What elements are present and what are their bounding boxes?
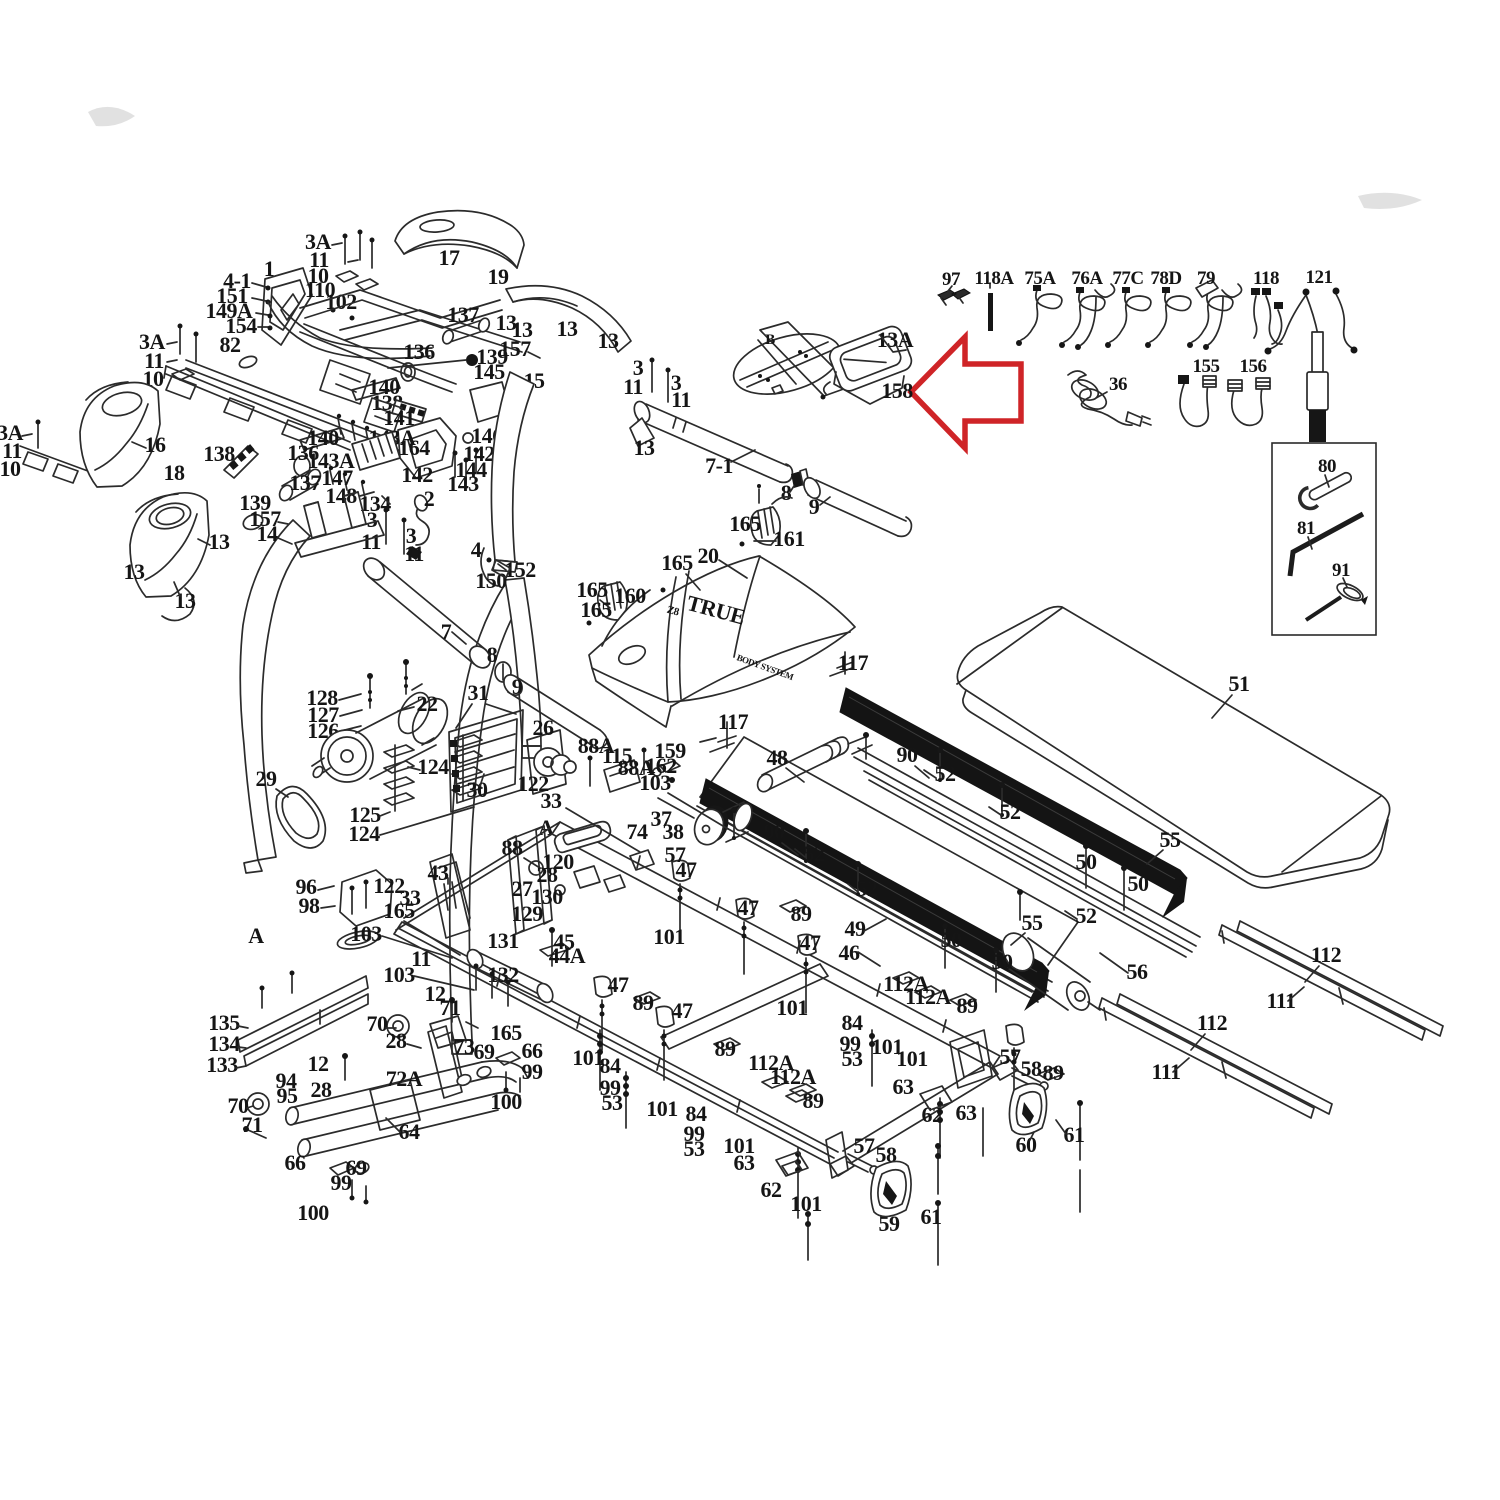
svg-text:4: 4 bbox=[471, 537, 482, 562]
svg-text:14: 14 bbox=[257, 521, 279, 546]
svg-text:101: 101 bbox=[653, 924, 685, 949]
svg-text:13: 13 bbox=[634, 435, 656, 460]
svg-text:38: 38 bbox=[663, 819, 685, 844]
svg-text:75A: 75A bbox=[1024, 268, 1056, 289]
svg-text:13: 13 bbox=[124, 559, 146, 584]
svg-text:9: 9 bbox=[512, 674, 523, 699]
svg-text:63: 63 bbox=[956, 1100, 978, 1125]
svg-text:118A: 118A bbox=[974, 268, 1014, 289]
svg-text:26: 26 bbox=[533, 715, 555, 740]
svg-text:47: 47 bbox=[800, 930, 822, 955]
svg-text:71: 71 bbox=[440, 995, 461, 1020]
svg-text:50: 50 bbox=[992, 949, 1014, 974]
svg-text:133: 133 bbox=[206, 1052, 238, 1077]
svg-text:142: 142 bbox=[401, 462, 433, 487]
svg-text:103: 103 bbox=[383, 962, 415, 987]
svg-text:74: 74 bbox=[627, 819, 649, 844]
svg-text:165: 165 bbox=[383, 898, 415, 923]
svg-text:47: 47 bbox=[672, 998, 694, 1023]
svg-text:B: B bbox=[765, 332, 775, 348]
svg-text:103: 103 bbox=[350, 921, 382, 946]
svg-text:1: 1 bbox=[264, 256, 275, 281]
svg-text:69: 69 bbox=[474, 1039, 496, 1064]
svg-text:53: 53 bbox=[602, 1090, 624, 1115]
svg-text:89: 89 bbox=[791, 901, 813, 926]
svg-text:158: 158 bbox=[881, 378, 913, 403]
svg-text:13: 13 bbox=[209, 529, 231, 554]
svg-text:155: 155 bbox=[1193, 356, 1220, 377]
svg-text:2: 2 bbox=[424, 486, 435, 511]
svg-text:124: 124 bbox=[348, 821, 380, 846]
svg-text:117: 117 bbox=[718, 709, 749, 734]
svg-text:72A: 72A bbox=[386, 1066, 423, 1091]
svg-text:138: 138 bbox=[203, 441, 235, 466]
svg-text:89: 89 bbox=[957, 993, 979, 1018]
svg-text:11: 11 bbox=[404, 541, 424, 566]
svg-text:46: 46 bbox=[839, 940, 861, 965]
svg-text:136: 136 bbox=[403, 339, 435, 364]
svg-text:52: 52 bbox=[1000, 799, 1022, 824]
svg-text:90: 90 bbox=[764, 819, 786, 844]
svg-text:47: 47 bbox=[608, 972, 630, 997]
svg-text:100: 100 bbox=[490, 1089, 522, 1114]
svg-text:33: 33 bbox=[541, 788, 563, 813]
svg-text:76A: 76A bbox=[1071, 268, 1103, 289]
svg-text:47: 47 bbox=[738, 895, 760, 920]
svg-text:63: 63 bbox=[734, 1150, 756, 1175]
svg-text:91: 91 bbox=[1332, 560, 1350, 581]
svg-text:47: 47 bbox=[676, 857, 698, 882]
svg-text:30: 30 bbox=[467, 777, 489, 802]
svg-text:58: 58 bbox=[1021, 1056, 1043, 1081]
svg-text:156: 156 bbox=[1240, 356, 1267, 377]
svg-text:95: 95 bbox=[277, 1083, 299, 1108]
svg-text:100: 100 bbox=[297, 1200, 329, 1225]
svg-text:49: 49 bbox=[845, 916, 867, 941]
svg-text:161: 161 bbox=[773, 526, 805, 551]
svg-text:89: 89 bbox=[1043, 1060, 1065, 1085]
svg-text:117: 117 bbox=[838, 650, 869, 675]
svg-text:16: 16 bbox=[145, 432, 167, 457]
svg-text:61: 61 bbox=[921, 1204, 942, 1229]
svg-text:121: 121 bbox=[1306, 267, 1333, 288]
svg-text:13: 13 bbox=[598, 328, 620, 353]
svg-text:52: 52 bbox=[804, 841, 826, 866]
svg-text:89: 89 bbox=[803, 1088, 825, 1113]
svg-text:10: 10 bbox=[0, 456, 21, 481]
svg-text:11: 11 bbox=[671, 387, 691, 412]
svg-text:82: 82 bbox=[220, 332, 242, 357]
svg-text:7-1: 7-1 bbox=[705, 453, 733, 478]
svg-text:145: 145 bbox=[473, 359, 505, 384]
svg-text:51: 51 bbox=[1229, 671, 1250, 696]
svg-text:143: 143 bbox=[447, 471, 479, 496]
svg-text:98: 98 bbox=[299, 893, 321, 918]
svg-text:56: 56 bbox=[1127, 959, 1149, 984]
svg-text:22: 22 bbox=[417, 691, 439, 716]
svg-text:44A: 44A bbox=[549, 943, 586, 968]
svg-text:9: 9 bbox=[809, 494, 820, 519]
svg-text:111: 111 bbox=[1151, 1059, 1180, 1084]
svg-text:124: 124 bbox=[417, 754, 449, 779]
svg-text:137: 137 bbox=[289, 470, 321, 495]
svg-text:73: 73 bbox=[454, 1034, 476, 1059]
svg-text:101: 101 bbox=[646, 1096, 678, 1121]
svg-text:89: 89 bbox=[715, 1036, 737, 1061]
svg-text:88: 88 bbox=[502, 835, 524, 860]
svg-text:29: 29 bbox=[256, 766, 278, 791]
svg-text:112: 112 bbox=[1311, 942, 1342, 967]
svg-text:57: 57 bbox=[854, 1133, 876, 1158]
svg-text:160: 160 bbox=[614, 583, 646, 608]
svg-text:165: 165 bbox=[580, 597, 612, 622]
svg-text:60: 60 bbox=[1016, 1132, 1038, 1157]
svg-text:50: 50 bbox=[1128, 871, 1150, 896]
svg-text:101: 101 bbox=[776, 995, 808, 1020]
svg-text:131: 131 bbox=[487, 928, 519, 953]
svg-text:148: 148 bbox=[325, 483, 357, 508]
svg-text:7: 7 bbox=[441, 619, 452, 644]
svg-text:165: 165 bbox=[661, 550, 693, 575]
svg-text:97: 97 bbox=[942, 269, 961, 290]
svg-text:99: 99 bbox=[331, 1170, 353, 1195]
svg-text:53: 53 bbox=[842, 1046, 864, 1071]
svg-text:28: 28 bbox=[386, 1028, 408, 1053]
svg-text:A: A bbox=[248, 923, 264, 948]
svg-text:78D: 78D bbox=[1150, 268, 1181, 289]
svg-text:157: 157 bbox=[499, 336, 531, 361]
svg-text:79: 79 bbox=[1197, 268, 1215, 289]
svg-text:50: 50 bbox=[941, 927, 963, 952]
svg-text:137: 137 bbox=[447, 302, 479, 327]
svg-text:27: 27 bbox=[512, 876, 534, 901]
svg-text:55: 55 bbox=[1022, 910, 1044, 935]
svg-text:31: 31 bbox=[468, 680, 489, 705]
svg-text:18: 18 bbox=[164, 460, 186, 485]
svg-text:103: 103 bbox=[639, 770, 671, 795]
svg-text:77C: 77C bbox=[1112, 268, 1143, 289]
svg-text:28: 28 bbox=[311, 1077, 333, 1102]
svg-text:150: 150 bbox=[475, 568, 507, 593]
svg-text:12: 12 bbox=[308, 1051, 330, 1076]
svg-text:62: 62 bbox=[761, 1177, 783, 1202]
svg-text:63: 63 bbox=[893, 1074, 915, 1099]
svg-text:11: 11 bbox=[361, 529, 381, 554]
svg-text:64: 64 bbox=[399, 1119, 421, 1144]
svg-text:89: 89 bbox=[633, 990, 655, 1015]
svg-text:8: 8 bbox=[487, 642, 498, 667]
svg-text:52: 52 bbox=[1076, 903, 1098, 928]
svg-text:112A: 112A bbox=[905, 984, 951, 1009]
svg-text:165: 165 bbox=[490, 1020, 522, 1045]
svg-text:101: 101 bbox=[790, 1191, 822, 1216]
svg-text:19: 19 bbox=[488, 264, 510, 289]
svg-text:53: 53 bbox=[684, 1136, 706, 1161]
svg-text:57: 57 bbox=[1000, 1044, 1022, 1069]
svg-text:20: 20 bbox=[698, 543, 720, 568]
svg-text:99: 99 bbox=[522, 1059, 544, 1084]
svg-text:55: 55 bbox=[1160, 827, 1182, 852]
svg-text:90: 90 bbox=[897, 742, 919, 767]
svg-text:81: 81 bbox=[1297, 518, 1315, 539]
svg-text:11: 11 bbox=[623, 374, 643, 399]
svg-text:52: 52 bbox=[935, 761, 957, 786]
svg-text:36: 36 bbox=[1109, 374, 1127, 395]
svg-text:71: 71 bbox=[242, 1112, 263, 1137]
svg-text:13A: 13A bbox=[877, 327, 914, 352]
svg-text:118: 118 bbox=[1253, 268, 1279, 289]
svg-text:52: 52 bbox=[857, 876, 879, 901]
svg-text:129: 129 bbox=[511, 901, 543, 926]
svg-text:80: 80 bbox=[1318, 456, 1336, 477]
svg-text:43: 43 bbox=[428, 860, 450, 885]
svg-text:101: 101 bbox=[896, 1046, 928, 1071]
svg-text:112A: 112A bbox=[770, 1064, 816, 1089]
svg-text:13: 13 bbox=[557, 316, 579, 341]
svg-text:66: 66 bbox=[285, 1150, 307, 1175]
svg-text:112: 112 bbox=[1197, 1010, 1228, 1035]
svg-text:50: 50 bbox=[1076, 849, 1098, 874]
svg-text:17: 17 bbox=[439, 245, 461, 270]
svg-text:165: 165 bbox=[729, 511, 761, 536]
svg-text:111: 111 bbox=[1266, 988, 1295, 1013]
svg-text:48: 48 bbox=[767, 745, 789, 770]
